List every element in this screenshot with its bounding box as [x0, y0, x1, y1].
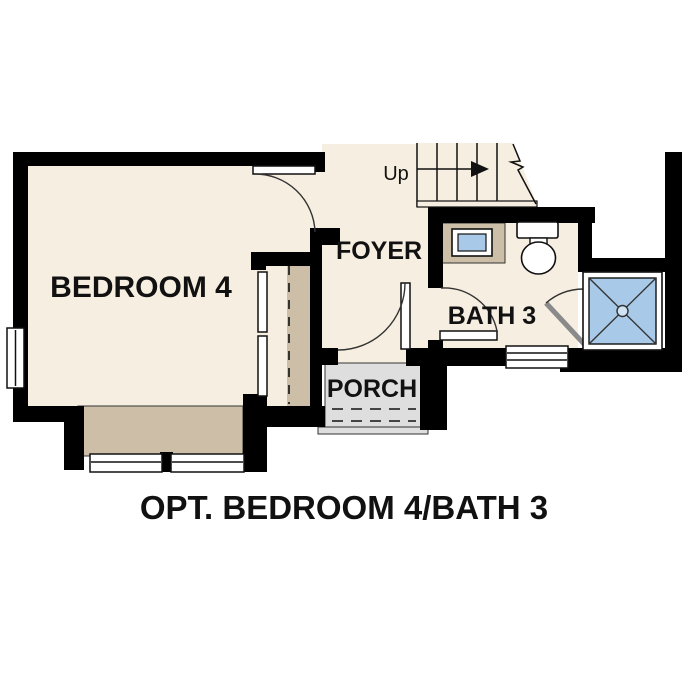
- wall-foyer-left: [310, 245, 322, 412]
- closet-shelf-strip: [287, 264, 310, 406]
- window-bath: [506, 346, 568, 368]
- closet-bypass-panel-1: [258, 272, 267, 332]
- shower-drain: [617, 306, 628, 317]
- wall-right-outer: [665, 152, 682, 372]
- wall-top-right-stub: [315, 152, 325, 172]
- toilet-tank: [517, 222, 558, 238]
- porch-label: PORCH: [327, 375, 417, 403]
- front-door-threshold: [338, 348, 406, 363]
- wall-bath-top: [428, 207, 595, 223]
- porch-step-lip: [318, 427, 428, 434]
- bay-window-seat: [78, 406, 243, 456]
- wall-top: [13, 152, 325, 166]
- wall-under-shower: [560, 354, 682, 372]
- wall-bay-left-post: [64, 406, 84, 470]
- plan-caption: OPT. BEDROOM 4/BATH 3: [140, 489, 548, 526]
- foyer-label: FOYER: [336, 237, 422, 265]
- window-bay-2: [171, 454, 244, 472]
- window-bay-1: [90, 454, 162, 472]
- wall-closet-stub-top: [251, 252, 266, 270]
- bedroom-door-leaf: [253, 166, 315, 174]
- toilet-bowl: [522, 242, 556, 274]
- wall-porch-right-column: [420, 348, 447, 430]
- sink-basin: [458, 234, 486, 251]
- closet-bypass-panel-2: [258, 336, 267, 396]
- floor-plan: BEDROOM 4 FOYER BATH 3 PORCH Up OPT. BED…: [0, 0, 687, 687]
- bath-label: BATH 3: [448, 302, 536, 330]
- front-door-leaf: [401, 283, 410, 349]
- stair-landing-edge: [417, 201, 537, 207]
- stairs-up-label: Up: [383, 163, 409, 185]
- wall-foyer-bottom-left: [322, 348, 338, 365]
- bath-door-leaf: [440, 331, 497, 340]
- bedroom-label: BEDROOM 4: [50, 271, 232, 304]
- floor-plan-drawing: BEDROOM 4 FOYER BATH 3 PORCH Up OPT. BED…: [0, 0, 687, 687]
